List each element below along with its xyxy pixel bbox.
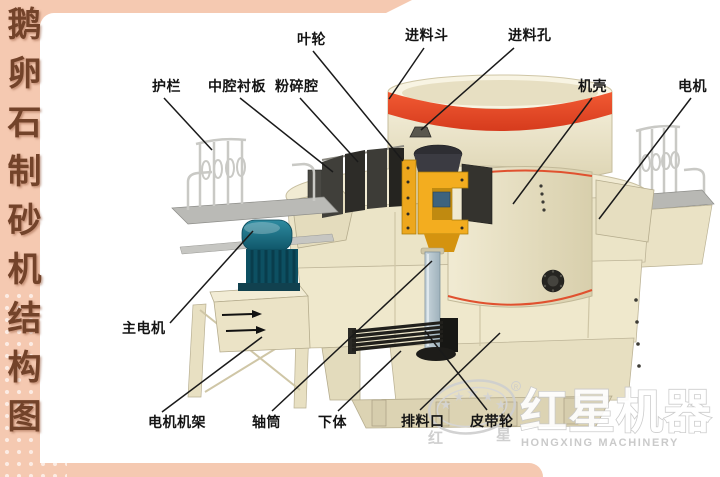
machine-diagram-svg: ★ ★ ★ ★ ★ R 红 星 红星机器 HONGXING MACHINERY <box>0 0 720 477</box>
svg-text:★: ★ <box>453 390 465 405</box>
label-feed-hole: 进料孔 <box>508 27 552 43</box>
label-main-motor: 主电机 <box>122 320 166 336</box>
label-cavity-liner: 中腔衬板 <box>208 78 266 94</box>
diagram-page: ★ ★ ★ ★ ★ R 红 星 红星机器 HONGXING MACHINERY <box>0 0 720 477</box>
brand-name-cn: 红星机器 <box>520 385 712 438</box>
label-belt-pulley: 皮带轮 <box>470 413 514 429</box>
label-discharge-port: 排料口 <box>401 413 445 429</box>
registered-mark: R <box>514 385 519 391</box>
label-impeller: 叶轮 <box>297 31 326 47</box>
label-casing: 机壳 <box>578 78 607 94</box>
frame-bottom-strip <box>0 463 543 477</box>
label-shaft-tube: 轴筒 <box>252 414 281 430</box>
seal-char-left: 红 <box>428 429 443 447</box>
svg-text:★: ★ <box>482 390 494 405</box>
label-motor: 电机 <box>678 78 707 94</box>
brand-name-en: HONGXING MACHINERY <box>521 437 679 449</box>
svg-text:★: ★ <box>440 398 452 413</box>
belt-pulley-part <box>416 347 456 361</box>
seal-char-right: 星 <box>496 427 511 444</box>
frame-top-strip <box>40 0 412 13</box>
svg-text:★: ★ <box>495 398 507 413</box>
label-crushing-chamber: 粉碎腔 <box>275 78 319 94</box>
main-motor-left <box>238 220 300 291</box>
page-title-vertical: 鹅卵石制砂机结构图 <box>1 6 40 447</box>
label-motor-frame: 电机机架 <box>148 414 206 430</box>
machine-illustration <box>172 75 714 428</box>
label-feed-hopper: 进料斗 <box>405 27 449 43</box>
label-lower-body: 下体 <box>318 414 347 430</box>
label-guardrail: 护栏 <box>152 78 181 94</box>
motor-mount-left <box>210 286 310 352</box>
